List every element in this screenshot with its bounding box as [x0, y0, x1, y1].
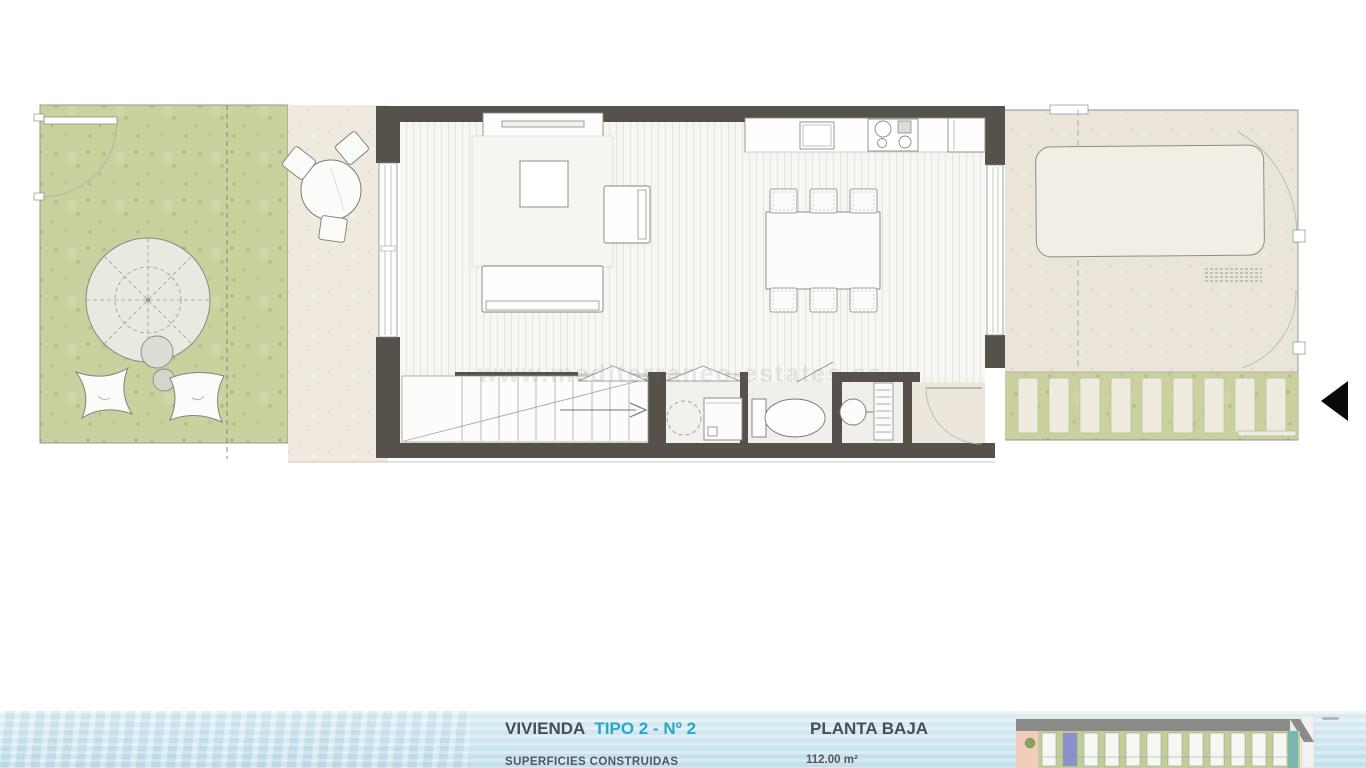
entrance-hall-floor [912, 382, 985, 443]
dining-table [766, 212, 880, 289]
south-wall [376, 443, 995, 458]
thumbnail-plaza [1016, 731, 1038, 768]
fridge [948, 118, 985, 152]
paver [1142, 378, 1162, 433]
paver [1111, 378, 1131, 433]
patio-gate [1050, 105, 1088, 114]
washbasin [840, 399, 866, 425]
armchair [604, 186, 650, 243]
thumbnail-unit [1042, 733, 1056, 766]
east-sliding-door [987, 165, 1003, 335]
paver [1173, 378, 1193, 433]
wc-room [752, 399, 825, 437]
thumbnail-unit [1231, 733, 1245, 766]
paver [1266, 378, 1286, 433]
unit-title: VIVIENDA TIPO 2 - Nº 2 [505, 719, 696, 739]
car-outline [1036, 145, 1265, 257]
west-wall-segment [376, 337, 400, 458]
watermark: www.mediterraneo-estates.es [478, 360, 838, 389]
east-wall-segment [985, 335, 1005, 368]
dining-chair [810, 288, 837, 312]
thumbnail-unit [1252, 733, 1266, 766]
garden-area [34, 105, 288, 459]
footer-band: VIVIENDA TIPO 2 - Nº 2 PLANTA BAJA SUPER… [0, 711, 1366, 768]
towel-radiator [874, 383, 893, 440]
tv [502, 121, 584, 127]
thumbnail-tree [1025, 738, 1035, 748]
dining-chair [850, 189, 877, 213]
boundary-opening [1293, 342, 1305, 354]
toilet [752, 399, 825, 437]
paver-steps [1018, 378, 1286, 433]
thumbnail-unit [1084, 733, 1098, 766]
floor-plan-page: www.mediterraneo-estates.es VIVIENDA TIP… [0, 0, 1366, 768]
garden-gate-leaf [44, 117, 117, 124]
thumbnail-unit [1147, 733, 1161, 766]
washing-machine [704, 398, 742, 440]
coffee-table [520, 161, 568, 207]
sofa [482, 266, 603, 312]
unit-title-highlight: TIPO 2 - Nº 2 [594, 719, 696, 738]
thumbnail-unit [1189, 733, 1203, 766]
kitchen-sink [800, 122, 834, 149]
partition-wall [903, 372, 912, 443]
west-sliding-door [379, 163, 397, 337]
boundary-opening [1293, 230, 1305, 242]
paver [1080, 378, 1100, 433]
threshold-step [1238, 431, 1296, 436]
west-wall-segment [376, 106, 400, 163]
thumbnail-unit [1210, 733, 1224, 766]
site-plan-thumbnail [1016, 716, 1316, 768]
kitchen-counter [745, 118, 985, 152]
house [376, 106, 1005, 458]
unit-title-prefix: VIVIENDA [505, 719, 585, 738]
paver [1235, 378, 1255, 433]
dining-chair [770, 288, 797, 312]
thumbnail-unit [1168, 733, 1182, 766]
surface-value: 112.00 m² [806, 754, 858, 766]
plan-title: PLANTA BAJA [810, 719, 928, 739]
paver [1018, 378, 1038, 433]
logo-smudge [1322, 717, 1339, 720]
dining-chair [810, 189, 837, 213]
paver [1204, 378, 1224, 433]
dining-set [766, 189, 880, 312]
gate-hinge-mark [34, 114, 44, 121]
dining-chair [770, 189, 797, 213]
garden-side-table [141, 336, 173, 368]
thumbnail-pool [1288, 731, 1298, 768]
paver-path [1005, 372, 1298, 440]
thumbnail-unit [1126, 733, 1140, 766]
dining-chair [850, 288, 877, 312]
bistro-chair [318, 215, 347, 242]
surface-label: SUPERFICIES CONSTRUIDAS [505, 756, 678, 768]
thumbnail-unit [1273, 733, 1287, 766]
bean-bag-right [170, 372, 224, 422]
gate-hinge-mark [34, 193, 44, 200]
thumbnail-highlighted-unit [1063, 733, 1077, 766]
entrance-arrow-icon [1321, 381, 1348, 421]
east-wall-segment [985, 106, 1005, 165]
paver [1049, 378, 1069, 433]
thumbnail-unit [1105, 733, 1119, 766]
cooktop [868, 119, 918, 151]
